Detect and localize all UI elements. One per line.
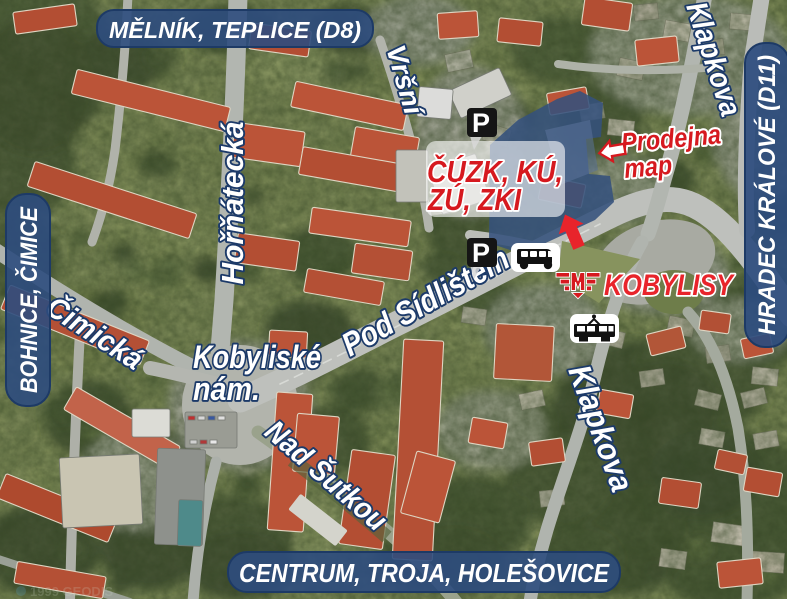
svg-text:Hořňátecká: Hořňátecká (215, 122, 250, 285)
svg-text:MĚLNÍK, TEPLICE (D8): MĚLNÍK, TEPLICE (D8) (109, 16, 361, 43)
svg-text:1999 GEODIS: 1999 GEODIS (30, 584, 113, 599)
svg-text:ZÚ, ZKI: ZÚ, ZKI (427, 182, 522, 217)
svg-text:HRADEC KRÁLOVÉ (D11): HRADEC KRÁLOVÉ (D11) (753, 55, 781, 335)
svg-text:CENTRUM, TROJA, HOLEŠOVICE: CENTRUM, TROJA, HOLEŠOVICE (239, 558, 610, 588)
svg-text:P: P (472, 238, 490, 268)
svg-text:nám.: nám. (193, 371, 260, 407)
svg-text:P: P (472, 108, 490, 138)
svg-text:KOBYLISY: KOBYLISY (604, 269, 736, 302)
svg-text:BOHNICE, ČIMICE: BOHNICE, ČIMICE (15, 206, 43, 393)
svg-text:map: map (623, 150, 673, 184)
svg-text:Kobyliské: Kobyliské (193, 339, 321, 375)
